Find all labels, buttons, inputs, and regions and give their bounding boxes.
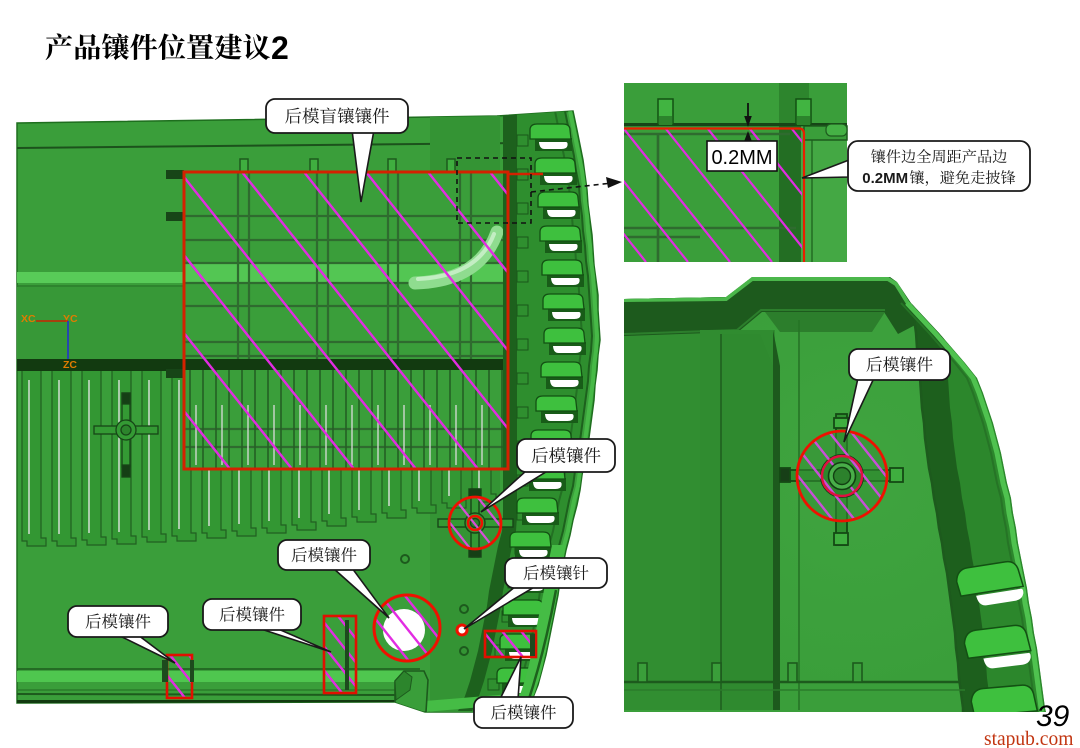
svg-text:stapub.com: stapub.com: [984, 729, 1073, 748]
svg-text:0.2MM: 0.2MM: [862, 170, 908, 187]
svg-text:2: 2: [271, 30, 289, 66]
svg-text:ZC: ZC: [63, 359, 77, 371]
svg-text:0.2MM: 0.2MM: [711, 147, 772, 169]
svg-text:YC: YC: [63, 313, 78, 325]
svg-text:XC: XC: [21, 313, 36, 325]
